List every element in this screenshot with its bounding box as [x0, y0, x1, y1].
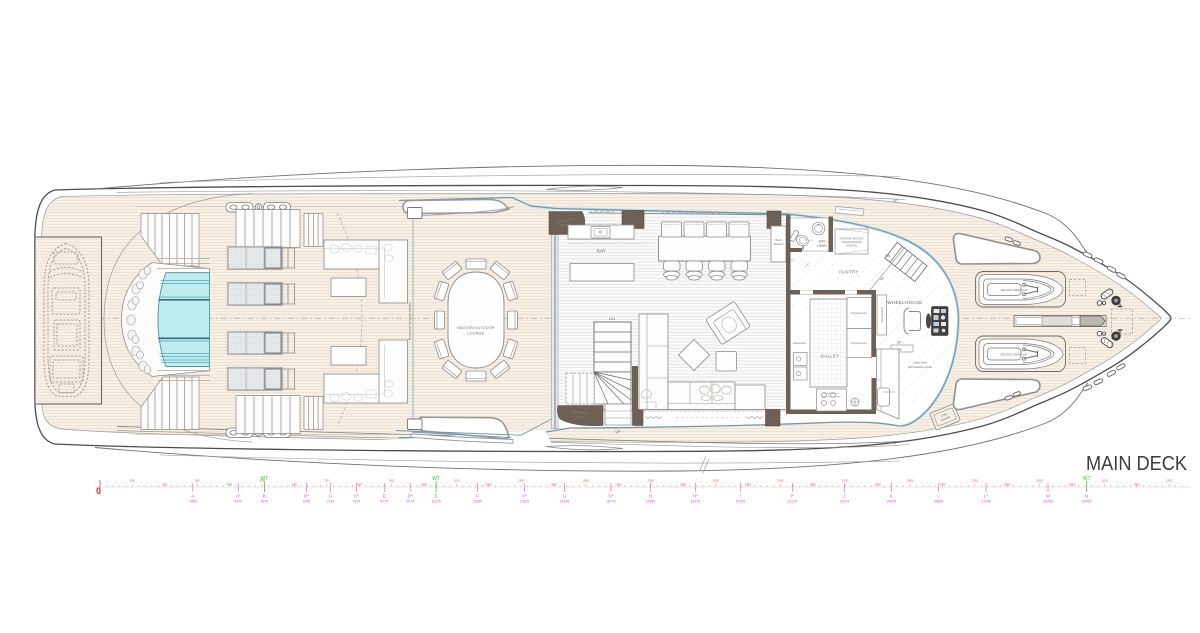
svg-text:25000: 25000: [907, 481, 914, 483]
svg-text:10000: 10000: [421, 485, 428, 487]
svg-text:16985: 16985: [646, 500, 656, 504]
svg-text:20000: 20000: [745, 485, 752, 487]
svg-text:22000: 22000: [810, 485, 817, 487]
svg-text:7000: 7000: [324, 481, 330, 483]
svg-text:L*: L*: [984, 494, 988, 499]
svg-text:SEA DOO SPARK 2UP: SEA DOO SPARK 2UP: [1001, 352, 1028, 356]
svg-text:29258: 29258: [1043, 500, 1053, 504]
svg-text:1000: 1000: [130, 481, 136, 483]
svg-text:15770: 15770: [606, 500, 616, 504]
svg-text:C: C: [329, 494, 332, 499]
svg-text:18000: 18000: [680, 485, 687, 487]
svg-text:24000: 24000: [874, 485, 881, 487]
svg-text:Switchboards: Switchboards: [880, 307, 884, 323]
svg-text:UP: UP: [616, 430, 622, 434]
svg-text:A: A: [191, 494, 194, 499]
svg-text:ESPRESSO MACHINE: ESPRESSO MACHINE: [840, 238, 864, 241]
svg-text:I: I: [740, 494, 741, 499]
svg-text:31000: 31000: [1101, 481, 1108, 483]
svg-text:HEAD: HEAD: [817, 244, 827, 248]
svg-text:21000: 21000: [777, 481, 784, 483]
svg-text:24425: 24425: [887, 500, 897, 504]
svg-text:Dishwasher: Dishwasher: [793, 341, 807, 345]
svg-text:A*: A*: [236, 494, 241, 499]
svg-text:N: N: [1085, 494, 1088, 499]
svg-text:C*: C*: [354, 494, 359, 499]
svg-text:Fridge/Freezer: Fridge/Freezer: [851, 342, 868, 345]
svg-text:7915: 7915: [353, 500, 361, 504]
svg-text:BAR: BAR: [597, 249, 606, 254]
svg-text:13000: 13000: [518, 481, 525, 483]
svg-text:3000: 3000: [195, 481, 201, 483]
svg-text:14335: 14335: [560, 500, 570, 504]
svg-text:4270: 4270: [235, 500, 243, 504]
svg-text:Oven under counter: Oven under counter: [821, 395, 841, 398]
svg-text:G*: G*: [608, 494, 613, 499]
svg-text:28000: 28000: [1004, 485, 1011, 487]
svg-text:DN: DN: [886, 254, 891, 258]
svg-text:Shelves: Shelves: [774, 242, 785, 246]
svg-text:16000: 16000: [615, 485, 622, 487]
svg-text:F*: F*: [522, 494, 527, 499]
svg-text:22974: 22974: [840, 500, 850, 504]
svg-text:SEA DOO SPARK 2UP: SEA DOO SPARK 2UP: [1001, 288, 1028, 292]
svg-text:D: D: [383, 494, 386, 499]
svg-text:F: F: [476, 494, 479, 499]
svg-text:B: B: [263, 494, 266, 499]
svg-text:29000: 29000: [1036, 481, 1043, 483]
svg-text:Fridge/Freezer: Fridge/Freezer: [851, 312, 868, 315]
svg-text:GALLEY: GALLEY: [821, 354, 840, 359]
svg-text:PANTRY: PANTRY: [839, 270, 859, 275]
svg-text:10375: 10375: [431, 500, 441, 504]
svg-text:33000: 33000: [1166, 481, 1173, 483]
svg-text:5075: 5075: [261, 500, 269, 504]
svg-text:I*: I*: [791, 494, 794, 499]
svg-text:25880: 25880: [934, 500, 944, 504]
svg-text:2865: 2865: [189, 500, 197, 504]
svg-text:30000: 30000: [1069, 485, 1076, 487]
svg-text:M: M: [1046, 494, 1050, 499]
svg-text:D*: D*: [408, 494, 413, 499]
svg-text:30455: 30455: [1082, 500, 1092, 504]
svg-text:K: K: [890, 494, 893, 499]
svg-text:19000: 19000: [712, 481, 719, 483]
svg-text:UP: UP: [897, 341, 901, 345]
svg-text:with Drawers Under: with Drawers Under: [908, 365, 933, 369]
svg-text:B*: B*: [304, 494, 309, 499]
svg-text:6375: 6375: [303, 500, 311, 504]
svg-text:15000: 15000: [583, 481, 590, 483]
svg-text:MAIN DECK: MAIN DECK: [1086, 452, 1187, 475]
svg-text:J: J: [843, 494, 845, 499]
svg-text:WHEELHOUSE: WHEELHOUSE: [887, 300, 922, 305]
svg-text:UP: UP: [893, 199, 897, 203]
svg-text:13105: 13105: [520, 500, 530, 504]
svg-text:19765: 19765: [736, 500, 746, 504]
svg-text:17000: 17000: [648, 481, 655, 483]
svg-text:UP: UP: [893, 441, 897, 445]
svg-text:Enclosed Veranda Option: Enclosed Veranda Option: [408, 302, 412, 341]
svg-text:27000: 27000: [972, 481, 979, 483]
svg-text:G: G: [563, 494, 567, 499]
svg-text:27345: 27345: [981, 500, 991, 504]
svg-text:2000: 2000: [162, 485, 168, 487]
svg-text:6000: 6000: [292, 485, 298, 487]
svg-text:DAY: DAY: [819, 240, 826, 244]
svg-text:INDOOR/OUTDOOR: INDOOR/OUTDOOR: [457, 326, 495, 330]
svg-text:11000: 11000: [453, 481, 460, 483]
svg-text:7115: 7115: [327, 500, 334, 504]
svg-text:H: H: [649, 494, 652, 499]
svg-text:LOUNGE: LOUNGE: [468, 332, 485, 336]
svg-text:14000: 14000: [550, 485, 557, 487]
svg-text:8000: 8000: [357, 485, 363, 487]
svg-text:23000: 23000: [842, 481, 849, 483]
svg-text:26000: 26000: [939, 485, 946, 487]
svg-text:E: E: [435, 494, 438, 499]
svg-text:H*: H*: [693, 494, 698, 499]
svg-text:Fridge/Drawers: Fridge/Drawers: [824, 392, 840, 395]
svg-text:DN: DN: [609, 317, 615, 321]
svg-text:9000: 9000: [389, 481, 395, 483]
svg-text:18375: 18375: [691, 500, 701, 504]
svg-text:STORAGE: STORAGE: [846, 245, 858, 248]
svg-text:4000: 4000: [227, 485, 233, 487]
svg-text:21370: 21370: [788, 500, 798, 504]
svg-text:9574: 9574: [406, 500, 414, 504]
svg-text:32000: 32000: [1134, 485, 1141, 487]
svg-text:COFFEE MACHINE: COFFEE MACHINE: [841, 241, 862, 244]
svg-text:12000: 12000: [486, 485, 493, 487]
svg-text:11655: 11655: [473, 500, 482, 504]
svg-text:8775: 8775: [381, 500, 389, 504]
